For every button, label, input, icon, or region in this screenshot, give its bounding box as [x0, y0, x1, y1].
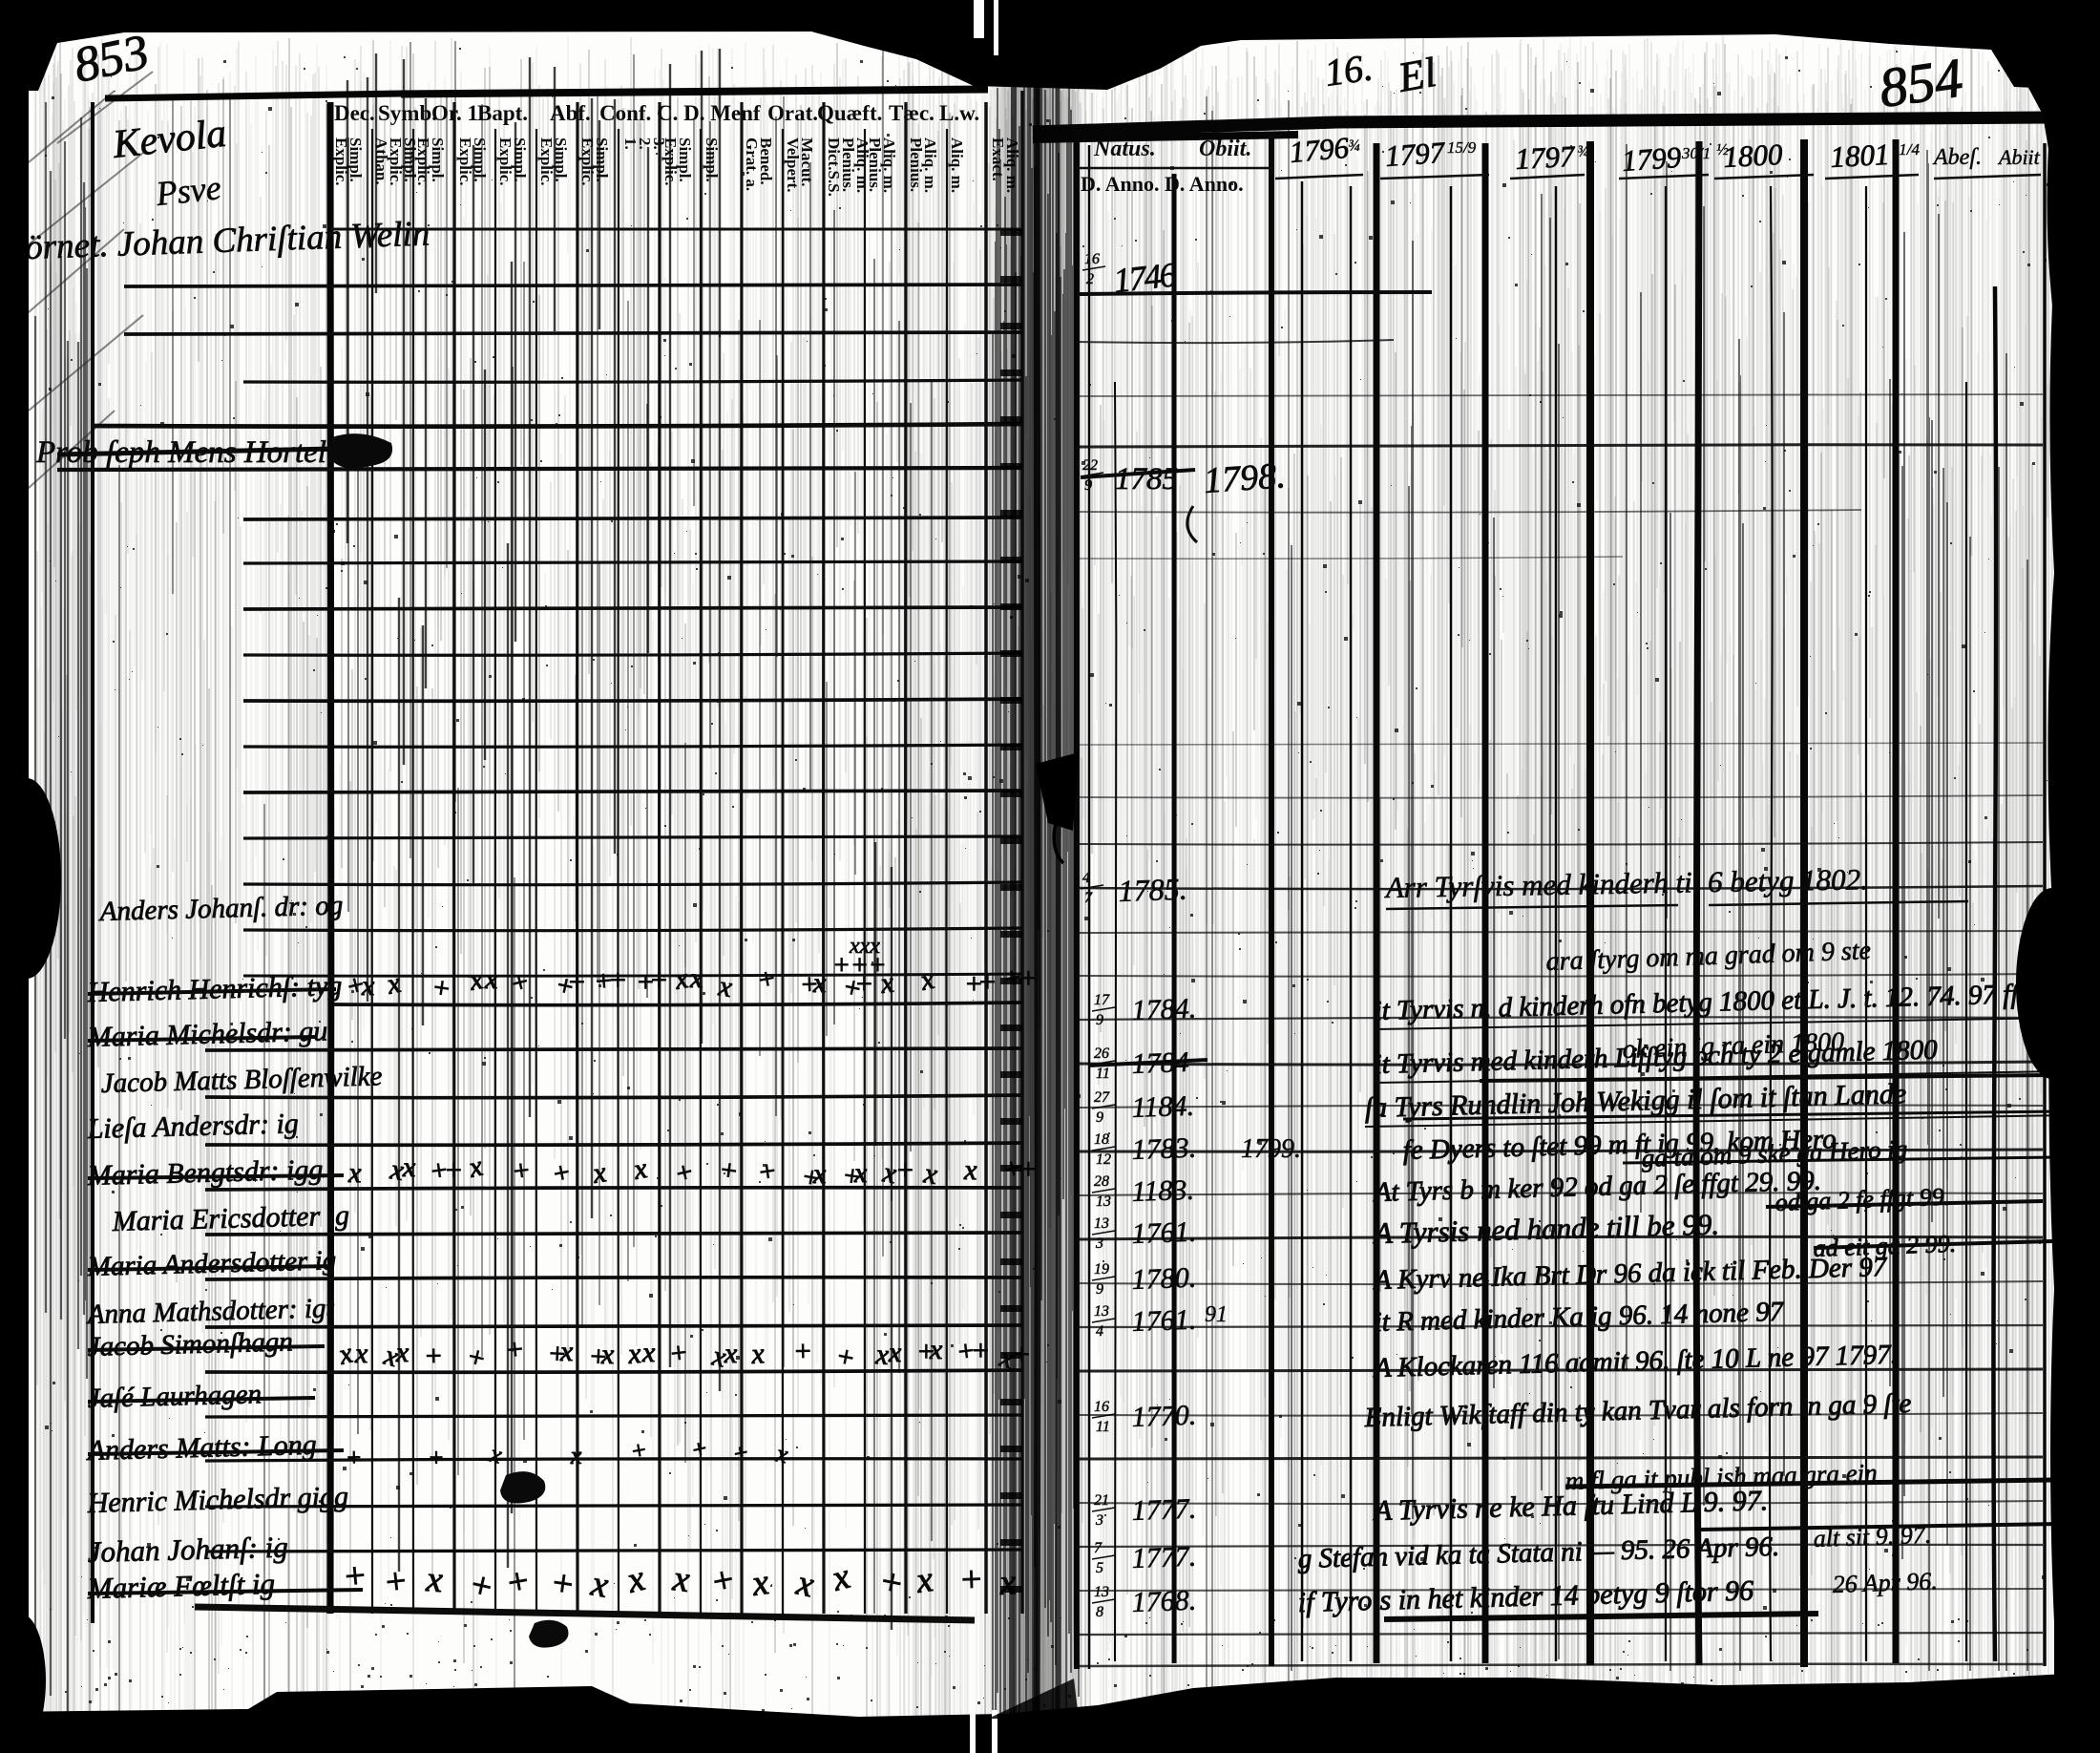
svg-text:28: 28 [1094, 1173, 1109, 1190]
svg-text:26 Apr 96.: 26 Apr 96. [1832, 1567, 1938, 1598]
svg-text:Simpl.: Simpl. [511, 137, 529, 182]
svg-text:Simpl.: Simpl. [593, 137, 611, 182]
svg-text:x: x [361, 970, 375, 1002]
svg-text:x: x [402, 1151, 416, 1183]
svg-text:1761.: 1761. [1131, 1304, 1197, 1338]
svg-text:Tæc.: Tæc. [889, 101, 934, 125]
svg-text:Anna Mathsdotter: igt: Anna Mathsdotter: igt [85, 1293, 334, 1330]
svg-text:Simpl.: Simpl. [346, 137, 365, 182]
svg-text:x: x [395, 1337, 409, 1368]
svg-text:Abeſ.: Abeſ. [1932, 145, 1982, 170]
svg-text:x: x [963, 1154, 978, 1186]
svg-text:15/9: 15/9 [1447, 138, 1477, 157]
svg-text:x: x [888, 1337, 902, 1368]
svg-text:Macut.: Macut. [798, 137, 816, 186]
svg-text:Psve: Psve [154, 168, 223, 213]
svg-text:13: 13 [1094, 1215, 1109, 1232]
svg-text:x: x [559, 1336, 574, 1367]
svg-text:1746: 1746 [1112, 255, 1179, 300]
svg-text:1761.: 1761. [1131, 1216, 1197, 1250]
svg-text:11: 11 [1096, 1419, 1110, 1435]
svg-text:1801: 1801 [1830, 137, 1891, 174]
svg-text:+: + [428, 1444, 445, 1471]
svg-text:x: x [347, 1157, 363, 1189]
svg-text:D. Anno. D. Anno.: D. Anno. D. Anno. [1081, 172, 1244, 196]
svg-text:1768.: 1768. [1131, 1585, 1197, 1618]
svg-text:Jaſé Laurhagen: Jaſé Laurhagen [87, 1379, 262, 1414]
svg-text:x: x [570, 1442, 583, 1469]
svg-text:16: 16 [1084, 251, 1100, 267]
svg-text:Anders Matts: Long: Anders Matts: Long [85, 1429, 317, 1467]
svg-text:+: + [504, 1333, 526, 1366]
svg-text:x: x [929, 1334, 943, 1365]
svg-text:Simpl.: Simpl. [676, 137, 694, 182]
svg-text:1799.: 1799. [1241, 1134, 1301, 1164]
svg-text:x: x [853, 1157, 868, 1189]
svg-text:2: 2 [1086, 271, 1094, 287]
svg-text:16: 16 [1094, 1399, 1109, 1415]
svg-text:Quæft.: Quæft. [817, 101, 882, 125]
svg-text:L.w.: L.w. [939, 101, 979, 125]
svg-text:+: + [424, 1341, 444, 1372]
svg-text:1797: 1797 [1515, 139, 1577, 176]
svg-text:x: x [689, 962, 703, 994]
svg-text:9: 9 [1096, 1012, 1103, 1028]
svg-text:Maria Michelsdr: gu: Maria Michelsdr: gu [86, 1015, 327, 1053]
svg-text:17: 17 [1094, 992, 1110, 1008]
svg-text:27: 27 [1094, 1089, 1110, 1106]
svg-text:26: 26 [1094, 1045, 1109, 1062]
svg-text:22: 22 [1082, 457, 1098, 474]
svg-text:3: 3 [1095, 1512, 1103, 1529]
svg-text:1798.: 1798. [1203, 455, 1287, 501]
svg-text:x: x [812, 1158, 827, 1190]
svg-text:12: 12 [1096, 1151, 1111, 1168]
svg-text:Symb.: Symb. [378, 101, 437, 125]
svg-text:Jacob Simonſhagn: Jacob Simonſhagn [87, 1326, 293, 1362]
svg-text:¾: ¾ [1348, 137, 1360, 155]
svg-text:1785.: 1785. [1118, 872, 1187, 908]
svg-text:Simpl.: Simpl. [471, 137, 489, 182]
svg-text:Maria Bengtsdr: igg: Maria Bengtsdr: igg [86, 1154, 323, 1192]
svg-text:Johan Johanſ: ig: Johan Johanſ: ig [87, 1531, 288, 1569]
svg-text:Simpl.: Simpl. [552, 137, 570, 182]
svg-text:1783.: 1783. [1131, 1132, 1197, 1166]
svg-text:Simpl.: Simpl. [703, 137, 721, 182]
svg-text:+: + [346, 1444, 363, 1471]
svg-text:x: x [424, 1559, 444, 1600]
svg-text:7: 7 [1094, 1540, 1102, 1556]
svg-text:1770.: 1770. [1131, 1400, 1197, 1433]
svg-text:9: 9 [1096, 1109, 1103, 1126]
svg-text:Maria Ericsdotter ig: Maria Ericsdotter ig [111, 1200, 349, 1238]
svg-text:91: 91 [1205, 1302, 1228, 1327]
svg-text:x: x [600, 1339, 615, 1370]
svg-text:+: + [608, 964, 627, 996]
svg-text:½: ½ [1716, 140, 1729, 158]
svg-text:+: + [895, 1154, 914, 1186]
svg-text:Dec.: Dec. [334, 101, 375, 125]
svg-text:Natus.: Natus. [1093, 137, 1156, 161]
svg-text:Abiit: Abiit [1997, 145, 2041, 169]
svg-text:+: + [567, 966, 586, 998]
svg-text:Aliq. m.: Aliq. m. [948, 137, 966, 193]
svg-text:1184.: 1184. [1131, 1090, 1194, 1124]
svg-text:x: x [641, 1337, 656, 1368]
svg-text:Conf.: Conf. [599, 101, 651, 125]
svg-text:+: + [341, 1555, 368, 1597]
svg-text:+: + [444, 1154, 463, 1186]
svg-text:13: 13 [1096, 1193, 1111, 1210]
svg-text:4: 4 [1096, 1323, 1103, 1340]
svg-text:Obiit.: Obiit. [1199, 137, 1251, 161]
svg-text:El: El [1394, 49, 1439, 101]
svg-text:+: + [793, 1336, 813, 1367]
svg-text:1777.: 1777. [1131, 1541, 1197, 1574]
svg-text:+: + [667, 1337, 690, 1370]
svg-text:1777.: 1777. [1131, 1493, 1197, 1527]
svg-text:Mariæ Fœltſt ig: Mariæ Fœltſt ig [86, 1567, 275, 1605]
svg-text:+: + [510, 1154, 533, 1188]
svg-text:+: + [958, 1559, 984, 1600]
svg-text:¾: ¾ [1577, 142, 1589, 160]
svg-text:1796: 1796 [1289, 131, 1351, 169]
svg-text:C. D. Menf: C. D. Menf [657, 101, 761, 125]
svg-text:xxx: xxx [849, 934, 880, 959]
svg-text:30/1: 30/1 [1681, 144, 1711, 162]
svg-text:+: + [382, 1560, 410, 1602]
svg-text:11: 11 [1096, 1066, 1110, 1082]
svg-text:13: 13 [1094, 1584, 1109, 1600]
svg-text:1785: 1785 [1115, 462, 1178, 496]
svg-text:Bened.: Bened. [757, 137, 775, 185]
svg-text:1797: 1797 [1384, 136, 1447, 173]
svg-text:Bapt.: Bapt. [477, 101, 528, 125]
svg-text:1183.: 1183. [1131, 1174, 1194, 1208]
svg-text:16.: 16. [1322, 45, 1375, 95]
svg-text:8: 8 [1096, 1604, 1103, 1620]
svg-text:Simpl.: Simpl. [429, 137, 447, 182]
svg-text:1780.: 1780. [1131, 1262, 1197, 1296]
svg-text:5: 5 [1096, 1560, 1103, 1576]
svg-text:x: x [812, 967, 827, 999]
svg-text:+: + [649, 964, 668, 996]
svg-text:Lieſa Andersdr: ig: Lieſa Andersdr: ig [86, 1108, 299, 1145]
svg-text:Aliq. m.: Aliq. m. [880, 137, 898, 193]
svg-text:Aliq. m.: Aliq. m. [921, 137, 939, 193]
svg-text:4: 4 [1082, 870, 1090, 886]
svg-text:x: x [484, 963, 498, 995]
svg-text:9: 9 [1096, 1281, 1103, 1298]
svg-text:Maria Andersdotter ig: Maria Andersdotter ig [86, 1245, 336, 1282]
svg-text:18: 18 [1094, 1131, 1109, 1148]
svg-text:x: x [724, 1338, 738, 1369]
svg-text:Orat.: Orat. [767, 101, 818, 125]
svg-text:3: 3 [1095, 1236, 1103, 1252]
svg-text:11/4: 11/4 [1892, 140, 1920, 158]
svg-text:13: 13 [1094, 1303, 1109, 1320]
svg-text:Abf.: Abf. [550, 101, 591, 125]
svg-text:Anders Johanſ. dr: og: Anders Johanſ. dr: og [97, 890, 343, 927]
svg-text:9: 9 [1084, 477, 1092, 494]
svg-text:1784.: 1784. [1131, 993, 1197, 1026]
svg-text:7: 7 [1084, 890, 1093, 906]
svg-text:1799: 1799 [1621, 140, 1682, 178]
svg-text:21: 21 [1094, 1492, 1109, 1509]
svg-text:19: 19 [1094, 1261, 1109, 1278]
svg-text:x: x [354, 1338, 368, 1369]
svg-text:854: 854 [1876, 46, 1966, 118]
svg-text:Or. 1: Or. 1 [431, 101, 478, 125]
svg-text:1800: 1800 [1723, 137, 1784, 174]
